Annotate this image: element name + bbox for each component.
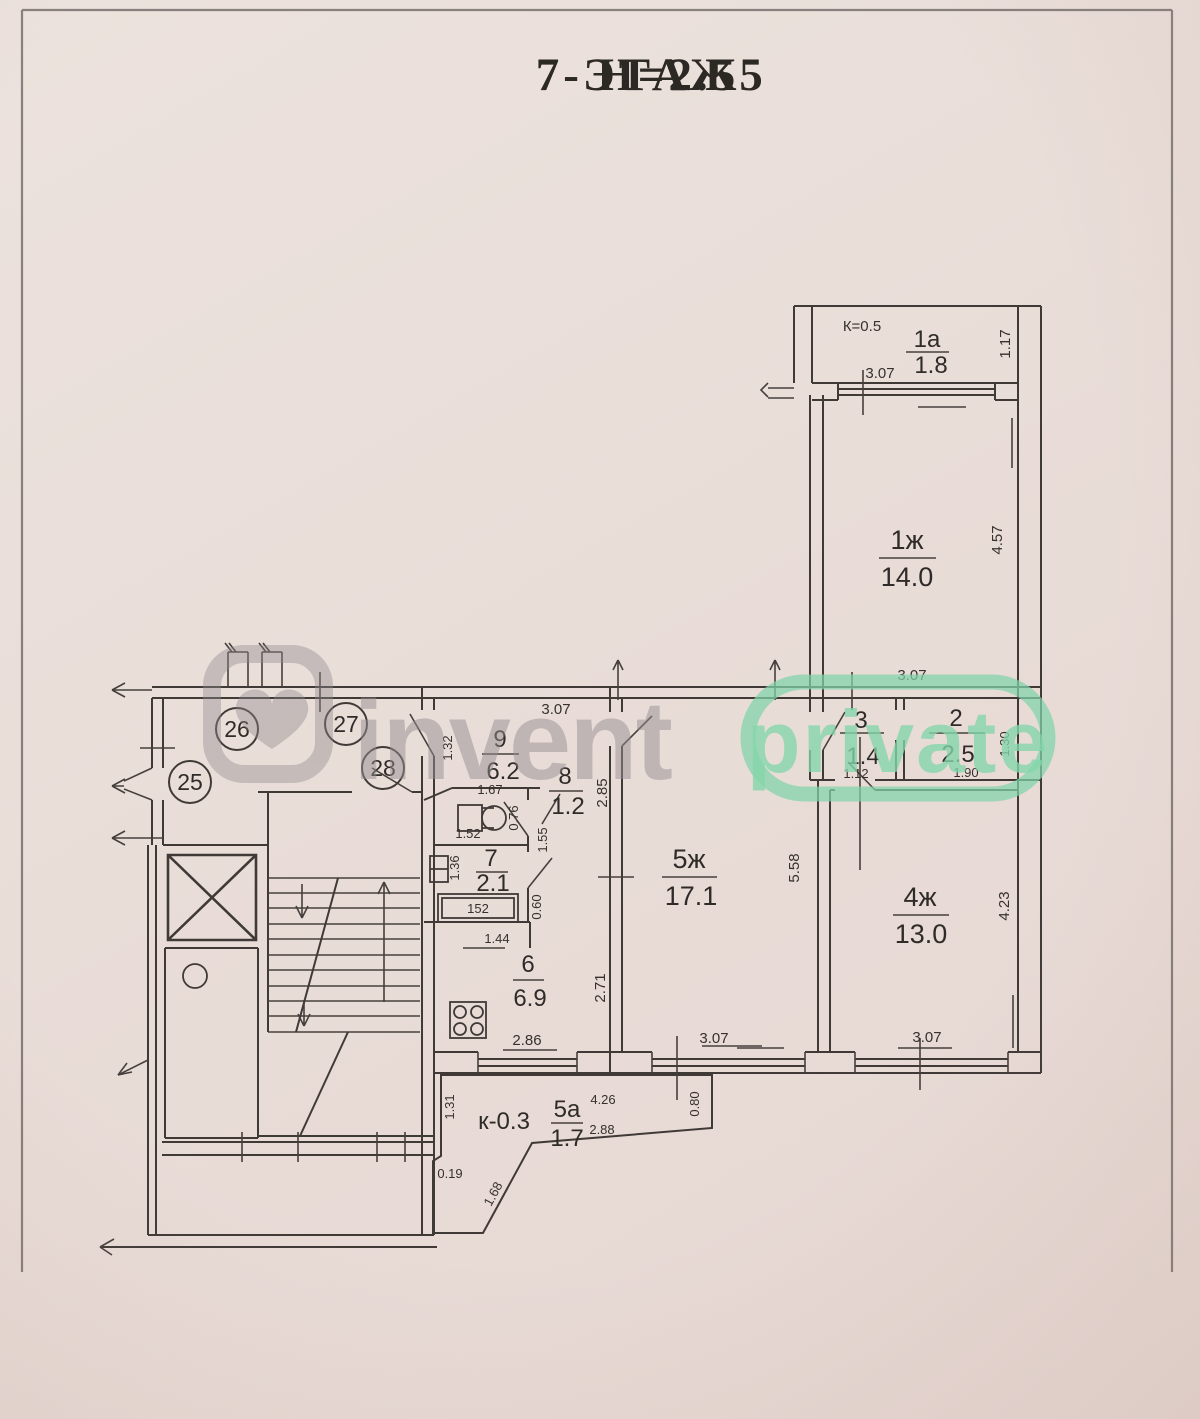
bath-7-area: 2.1	[476, 870, 509, 897]
unit-number-25: 25	[177, 769, 203, 795]
watermark-brand: invent	[353, 678, 672, 803]
kitchen-6-number: 6	[521, 951, 534, 978]
room-1zh-height-dim: 4.57	[989, 525, 1006, 554]
room-5zh-number: 5ж	[672, 844, 705, 874]
room-4zh-number: 4ж	[903, 882, 936, 912]
balcony-1a-area: 1.8	[914, 352, 947, 379]
bathtub-size-label: 152	[467, 901, 489, 916]
elevator-shaft	[168, 855, 256, 940]
kitchen-6-pass-dim: 0.60	[529, 894, 544, 919]
room-5zh-width-dim: 3.07	[699, 1030, 728, 1047]
scanned-floor-plan-page: 7-ЭТАЖ Н=2.55	[0, 0, 1200, 1419]
garbage-chute-icon	[183, 964, 207, 988]
kitchen-6-width-dim: 2.86	[512, 1032, 541, 1049]
kitchen-6-top-dim: 1.44	[484, 931, 509, 946]
balcony-5a-number: 5а	[554, 1096, 581, 1123]
room-5zh-left-lower-dim: 2.71	[592, 973, 609, 1002]
stove-icon	[450, 1002, 486, 1038]
wc-8-width-dim: 1.52	[455, 826, 480, 841]
wc-8-depth-dim: 0.76	[506, 805, 521, 830]
room-4zh-area: 13.0	[895, 919, 948, 949]
room-1zh-number: 1ж	[890, 525, 923, 555]
room-5zh-area: 17.1	[665, 881, 718, 911]
plan-title: 7-ЭТАЖ Н=2.55	[536, 49, 767, 101]
balcony-5a-step-dim: 0.19	[437, 1166, 462, 1181]
balcony-1a-width-dim: 3.07	[865, 365, 894, 382]
room-4zh-height-dim: 4.23	[996, 891, 1013, 920]
balcony-1a-depth-dim: 1.17	[997, 329, 1014, 358]
wc-8-lobby-dim: 1.55	[535, 827, 550, 852]
floor-plan-svg: 7-ЭТАЖ Н=2.55	[0, 0, 1200, 1419]
room-1zh-area: 14.0	[881, 562, 934, 592]
balcony-5a-left-dim: 1.31	[442, 1094, 457, 1119]
balcony-5a-coef: к-0.3	[478, 1108, 530, 1135]
balcony-1a-number: 1а	[914, 326, 941, 353]
balcony-5a-slope-dim: 1.68	[480, 1179, 505, 1208]
balcony-5a-diag-dim: 2.88	[589, 1122, 614, 1137]
room-5zh-height-dim: 5.58	[786, 853, 803, 882]
kitchen-6-area: 6.9	[513, 985, 546, 1012]
bath-7-depth-dim: 1.36	[447, 855, 462, 880]
watermark-badge-label: private	[747, 692, 1050, 791]
sink-icon	[430, 856, 448, 882]
balcony-5a-right-dim: 0.80	[687, 1091, 702, 1116]
balcony-1a-coef: К=0.5	[843, 318, 881, 335]
ceiling-height-title: Н=2.55	[597, 49, 767, 101]
page-frame	[22, 10, 1172, 1272]
watermark-badge: private	[747, 682, 1050, 794]
balcony-5a-top-dim: 4.26	[590, 1092, 615, 1107]
room-4zh-width-dim: 3.07	[912, 1029, 941, 1046]
balcony-5a-area: 1.7	[550, 1125, 583, 1152]
staircase	[268, 878, 420, 1136]
bath-7-number: 7	[484, 845, 497, 872]
